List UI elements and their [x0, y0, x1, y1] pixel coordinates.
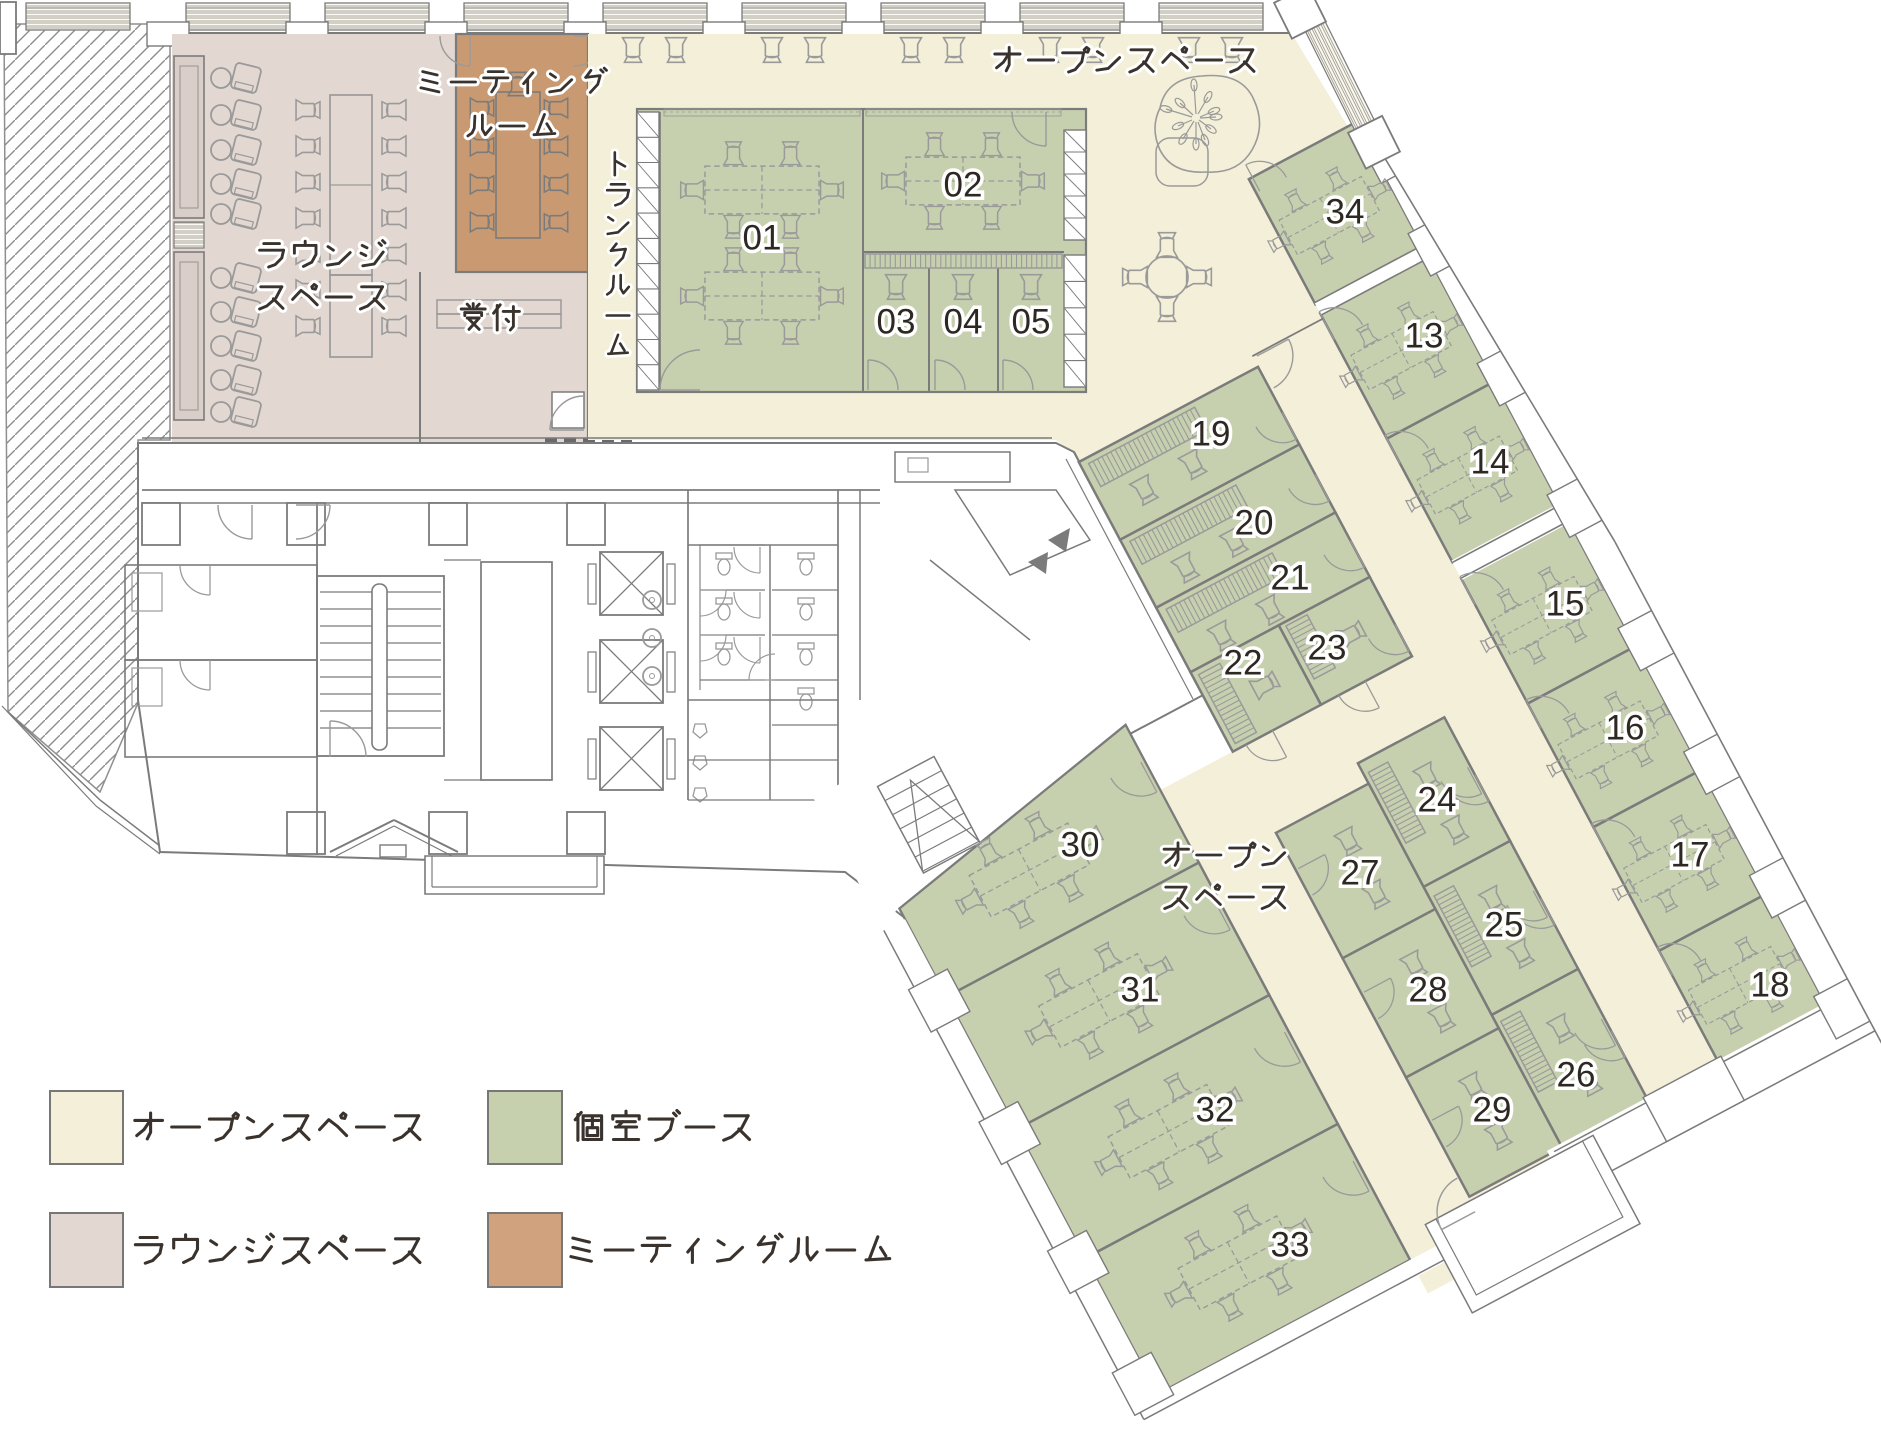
svg-text:20: 20	[1235, 504, 1274, 543]
svg-text:23: 23	[1308, 629, 1347, 668]
svg-text:03: 03	[877, 303, 916, 342]
svg-text:04: 04	[944, 303, 983, 342]
svg-text:27: 27	[1341, 854, 1380, 893]
svg-text:18: 18	[1751, 966, 1790, 1005]
svg-text:15: 15	[1546, 585, 1585, 624]
svg-text:01: 01	[743, 219, 782, 258]
svg-text:17: 17	[1671, 836, 1710, 875]
svg-text:22: 22	[1224, 644, 1263, 683]
svg-text:19: 19	[1192, 415, 1231, 454]
svg-text:29: 29	[1473, 1091, 1512, 1130]
svg-text:16: 16	[1606, 709, 1645, 748]
svg-text:26: 26	[1557, 1056, 1596, 1095]
svg-text:13: 13	[1405, 317, 1444, 356]
svg-text:30: 30	[1061, 826, 1100, 865]
svg-text:31: 31	[1121, 971, 1160, 1010]
svg-text:21: 21	[1271, 559, 1310, 598]
svg-text:02: 02	[944, 166, 983, 205]
svg-text:24: 24	[1418, 781, 1457, 820]
svg-text:25: 25	[1485, 906, 1524, 945]
svg-text:32: 32	[1196, 1091, 1235, 1130]
svg-text:14: 14	[1471, 443, 1510, 482]
svg-text:33: 33	[1271, 1226, 1310, 1265]
svg-text:05: 05	[1012, 303, 1051, 342]
svg-text:34: 34	[1326, 193, 1365, 232]
svg-text:28: 28	[1409, 971, 1448, 1010]
